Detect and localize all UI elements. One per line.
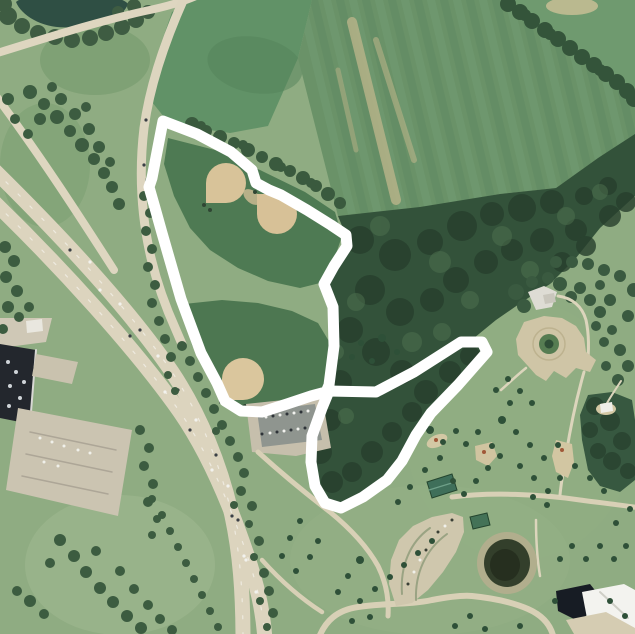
small-building-north: [26, 319, 43, 333]
ball-diamond-3: [222, 358, 264, 400]
park-pond-deep: [490, 549, 520, 581]
plaza-center-tree: [545, 340, 554, 349]
screenshot-root: [0, 0, 635, 634]
satellite-map-image: [0, 0, 635, 634]
ball-diamond-1: [206, 163, 246, 203]
house-wing: [543, 293, 556, 304]
